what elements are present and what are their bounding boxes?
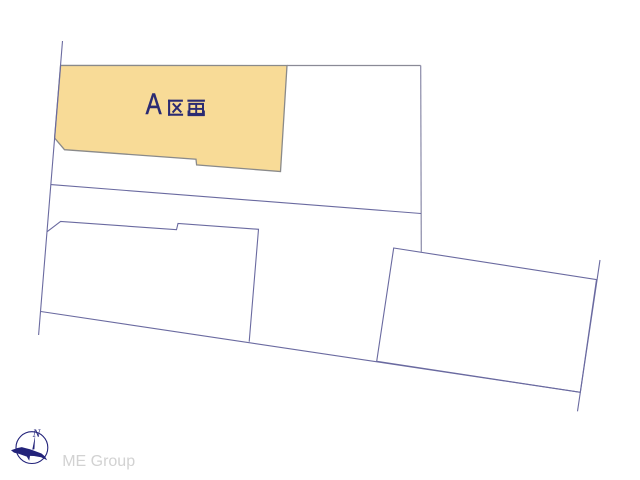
svg-text:N: N [32,428,42,440]
svg-text:ME Group: ME Group [62,453,135,470]
svg-text:A: A [146,86,163,120]
